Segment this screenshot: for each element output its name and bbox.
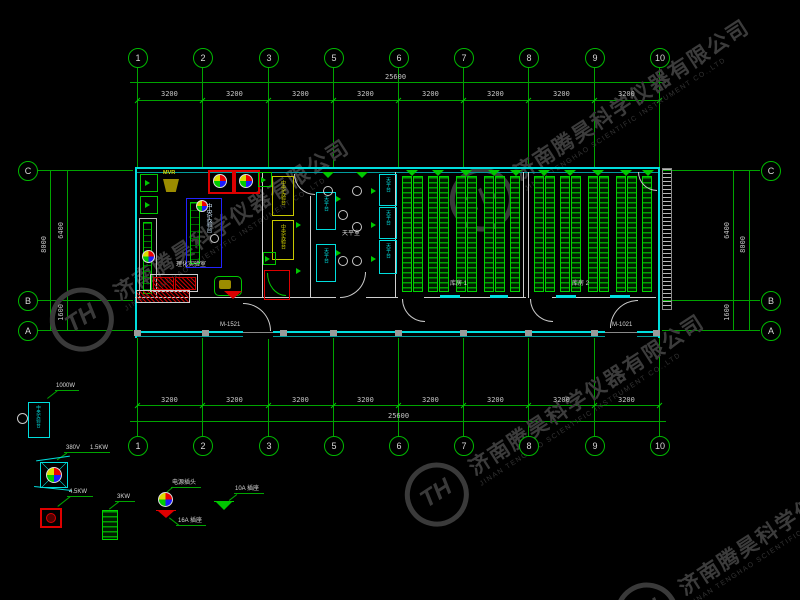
dim-bay: 3200 [487, 91, 504, 98]
grid-line [37, 300, 133, 301]
legend-label-plug: 电源插头 [172, 480, 196, 486]
bench-label: 中央实验台 [280, 224, 285, 249]
window [556, 295, 576, 298]
rack-column [642, 176, 652, 292]
ceiling-light [322, 172, 334, 178]
leader-line [229, 494, 237, 501]
dim-bay: 3200 [422, 91, 439, 98]
axis-bubble: 9 [585, 48, 605, 68]
balance-table: 天平台 [316, 192, 336, 230]
dim-row-total: 8000 [740, 236, 747, 253]
column [460, 330, 467, 336]
stool [352, 186, 362, 196]
company-logo: TH [603, 570, 692, 600]
rack-column [588, 176, 598, 292]
dim-bay: 3200 [226, 397, 243, 404]
dim-line [50, 170, 51, 330]
shelf-light [406, 170, 418, 176]
shelf-light [592, 170, 604, 176]
column [395, 330, 402, 336]
vent-arrow [371, 256, 376, 262]
axis-bubble: 10 [650, 48, 670, 68]
axis-bubble: 2 [193, 436, 213, 456]
window [610, 295, 630, 298]
axis-bubble: 7 [454, 48, 474, 68]
central-bench-yellow: 中央实验台 [272, 176, 294, 216]
legend-redbox-symbol [40, 508, 62, 528]
dim-total: 25600 [388, 413, 409, 420]
room-label-balance: 天平室 [342, 231, 360, 237]
legend-fan-top [36, 456, 70, 462]
wall-partition [310, 196, 311, 298]
watermark: TH 济南腾昊科学仪器有限公司 JINAN TENGHAO SCIENTIFIC… [603, 415, 800, 600]
door-arc [530, 299, 553, 322]
leader-line [109, 501, 119, 509]
wall-partition [528, 172, 529, 298]
rack-column [627, 176, 637, 292]
column [134, 330, 141, 336]
watermark-en: JINAN TENGHAO SCIENTIFIC INSTRUMENT CO.,… [688, 451, 800, 600]
column [202, 330, 209, 336]
vent-arrow [371, 188, 376, 194]
room-label-store2: 库房 2 [572, 281, 589, 287]
radiator-strip [662, 168, 672, 310]
door-arc [243, 303, 271, 331]
dim-row: 1600 [724, 304, 731, 321]
stool [352, 256, 362, 266]
axis-bubble: 5 [324, 48, 344, 68]
legend-plug-symbol [158, 492, 173, 507]
dim-line [733, 170, 734, 330]
shelf-light [564, 170, 576, 176]
dim-bay: 3200 [292, 397, 309, 404]
vent-arrow [296, 268, 301, 274]
fan-symbol [46, 467, 62, 483]
rack-column [484, 176, 494, 292]
wall-partition [262, 172, 263, 298]
fan-symbol [196, 200, 208, 212]
wall-exterior-left [135, 167, 137, 338]
axis-bubble: 8 [519, 436, 539, 456]
door-threshold [605, 332, 637, 333]
wall-exterior-bottom-inner [135, 336, 660, 337]
axis-bubble: 7 [454, 436, 474, 456]
door-arc [340, 272, 366, 298]
leader-line [57, 496, 70, 507]
dim-bay: 3200 [357, 91, 374, 98]
axis-bubble: C [18, 161, 38, 181]
dim-row: 6400 [58, 222, 65, 239]
balance-table: 天平台 [379, 240, 397, 274]
rack-column [495, 176, 505, 292]
legend-label-380v: 380V [66, 445, 80, 451]
column [591, 330, 598, 336]
vent-box [140, 174, 158, 192]
column [525, 330, 532, 336]
axis-bubble: 6 [389, 436, 409, 456]
dim-bay: 3200 [161, 397, 178, 404]
rack-column [599, 176, 609, 292]
axis-bubble: 3 [259, 48, 279, 68]
watermark-en: JINAN TENGHAO SCIENTIFIC INSTRUMENT CO.,… [478, 331, 713, 487]
stool [338, 256, 348, 266]
axis-bubble: 10 [650, 436, 670, 456]
axis-bubble: 5 [324, 436, 344, 456]
dim-bay: 3200 [618, 91, 635, 98]
grid-line [662, 170, 760, 171]
column [280, 330, 287, 336]
legend-label-socket10: 10A 插座 [235, 486, 259, 492]
axis-bubble: A [18, 321, 38, 341]
rack-column [510, 176, 520, 292]
shelf-light [460, 170, 472, 176]
door-arc [294, 174, 315, 195]
shelf-light [620, 170, 632, 176]
door-opening [605, 329, 637, 339]
mvr-label: MVR [163, 171, 175, 177]
fan-box [234, 170, 260, 194]
legend-bench-circle [17, 413, 28, 424]
door-threshold [243, 332, 273, 333]
axis-bubble: 1 [128, 436, 148, 456]
axis-bubble: B [761, 291, 781, 311]
grid-line [662, 330, 760, 331]
table-label: 天平台 [323, 248, 328, 263]
dim-bay: 3200 [553, 91, 570, 98]
shelf-light [488, 170, 500, 176]
column [330, 330, 337, 336]
dim-bay: 3200 [553, 397, 570, 404]
drain-triangle [224, 291, 242, 299]
grid-line [37, 170, 133, 171]
equipment-box [264, 270, 290, 300]
wall-exterior-top [135, 167, 660, 169]
dim-line [749, 170, 750, 330]
vent-arrow [296, 222, 301, 228]
rack-column [428, 176, 438, 292]
stool [210, 234, 219, 243]
rack-column [616, 176, 626, 292]
dim-line [130, 421, 666, 422]
dim-bay: 3200 [487, 397, 504, 404]
dim-row: 6400 [724, 222, 731, 239]
leader-line [115, 501, 135, 502]
window [440, 295, 460, 298]
wall-corridor [366, 297, 398, 298]
leader-line [47, 390, 58, 399]
mvr-unit [163, 179, 179, 192]
legend-label-socket16: 16A 插座 [178, 518, 202, 524]
dim-total: 25600 [385, 74, 406, 81]
door-arc [638, 172, 657, 191]
table-label: 天平台 [385, 243, 390, 258]
legend-label-3kw: 3KW [117, 494, 130, 500]
legend-bench-symbol: 中央实验台 [28, 402, 50, 438]
rack-column [456, 176, 466, 292]
rack-column [413, 176, 423, 292]
axis-bubble: 2 [193, 48, 213, 68]
axis-bubble: B [18, 291, 38, 311]
dim-line [67, 170, 68, 330]
legend-socket16-symbol [158, 511, 174, 518]
legend-socket10-top [214, 501, 234, 502]
legend-label-4-5kw: 4.5KW [69, 489, 87, 495]
rack-column [402, 176, 412, 292]
rack-column [467, 176, 477, 292]
dim-bay: 3200 [357, 397, 374, 404]
room-label-lab: 理化实验室 [176, 262, 206, 268]
dim-line [130, 82, 666, 83]
stool [323, 186, 333, 196]
legend-socket10-symbol [216, 502, 232, 510]
rack-column [534, 176, 544, 292]
leader-line [171, 487, 201, 488]
axis-bubble: 6 [389, 48, 409, 68]
fan-box [208, 170, 234, 194]
dim-row-total: 8000 [41, 236, 48, 253]
grid-line [662, 300, 760, 301]
ceiling-light [356, 172, 368, 178]
leader-line [67, 496, 93, 497]
leader-line [64, 452, 110, 453]
window [490, 295, 508, 298]
wall-exterior-right [658, 167, 660, 338]
shelf-light [538, 170, 550, 176]
fan-symbol [142, 250, 155, 263]
vent-arrow [336, 196, 341, 202]
leader-line [176, 525, 206, 526]
vent-arrow [371, 222, 376, 228]
company-logo: TH [393, 450, 482, 539]
stool [338, 210, 348, 220]
legend-socket16-top [156, 510, 176, 511]
watermark-cn: 济南腾昊科学仪器有限公司 [672, 426, 800, 600]
leader-line [234, 493, 264, 494]
legend-label-1-5kw: 1.5KW [90, 445, 108, 451]
door-arc [402, 299, 425, 322]
table-label: 天平台 [385, 177, 390, 192]
table-label: 天平台 [323, 196, 328, 211]
table-label: 天平台 [385, 210, 390, 225]
legend-bench-text: 中央实验台 [36, 405, 41, 428]
shelf-light [432, 170, 444, 176]
axis-bubble: 8 [519, 48, 539, 68]
vent-arrow [336, 250, 341, 256]
rack-column [560, 176, 570, 292]
axis-bubble: 3 [259, 436, 279, 456]
dim-row: 1600 [58, 304, 65, 321]
rack-column [545, 176, 555, 292]
dim-bay: 3200 [618, 397, 635, 404]
balance-table: 天平台 [316, 244, 336, 282]
axis-bubble: C [761, 161, 781, 181]
axis-bubble: 1 [128, 48, 148, 68]
legend-label-1000w: 1000W [56, 383, 75, 389]
balance-table: 天平台 [379, 174, 397, 206]
leader-line [55, 390, 79, 391]
vent-box [140, 196, 158, 214]
door-label-m1521: M-1521 [220, 322, 240, 328]
shelf-light [510, 170, 522, 176]
bench-label: 中央实验台 [280, 180, 285, 205]
dim-bay: 3200 [226, 91, 243, 98]
equipment-hatch [136, 290, 190, 303]
legend-rack-symbol [102, 510, 118, 540]
rack-column [571, 176, 581, 292]
dim-bay: 3200 [161, 91, 178, 98]
vent-box [263, 252, 276, 265]
door-label-m1021: M-1021 [612, 322, 632, 328]
room-label-store1: 库房 1 [450, 281, 467, 287]
axis-bubble: 9 [585, 436, 605, 456]
dim-bay: 3200 [292, 91, 309, 98]
column [653, 330, 660, 336]
axis-bubble: A [761, 321, 781, 341]
watermark-cn: 济南腾昊科学仪器有限公司 [507, 11, 755, 186]
rack-column [439, 176, 449, 292]
balance-table: 天平台 [379, 207, 397, 239]
wall-partition [523, 172, 524, 298]
cad-floorplan-canvas: TH 济南腾昊科学仪器有限公司 JINAN TENGHAO SCIENTIFIC… [0, 0, 800, 600]
grid-line [37, 330, 133, 331]
dim-bay: 3200 [422, 397, 439, 404]
vent-box [258, 172, 272, 187]
